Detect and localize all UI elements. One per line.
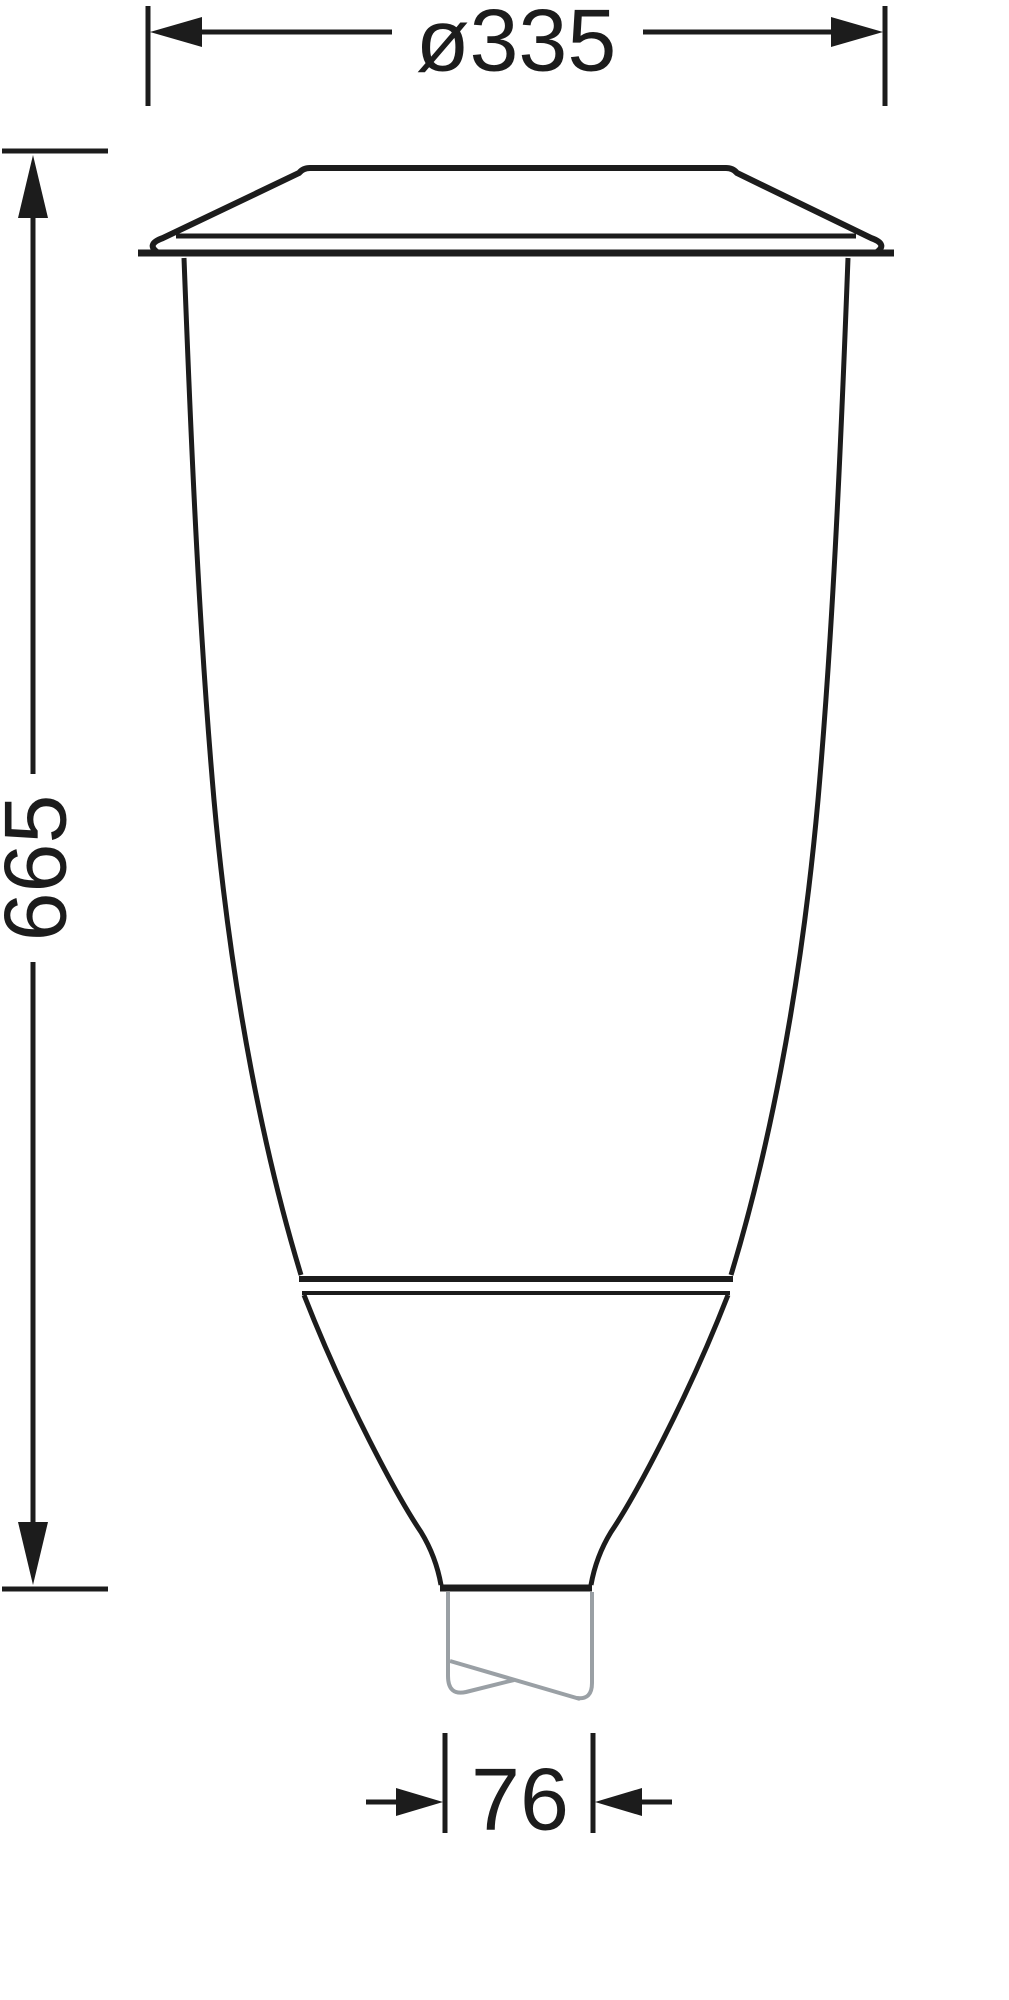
dimension-drawing: ø335 665 76	[0, 0, 1009, 2000]
dim-arrowhead-right	[831, 17, 883, 47]
luminaire-outline	[138, 168, 894, 1588]
ink-layer: ø335 665 76	[0, 0, 894, 1849]
funnel-side-left	[304, 1295, 441, 1585]
cap-hood-outline	[153, 168, 882, 252]
pole	[448, 1592, 592, 1699]
luminaire-dimension-svg: ø335 665 76	[0, 0, 1009, 2000]
spigot-width-label: 76	[471, 1750, 569, 1849]
dim-arrowhead-left	[150, 17, 202, 47]
top-diameter-label: ø335	[416, 0, 617, 90]
pole-break-diagonal	[450, 1661, 580, 1699]
height-arrowhead-bottom	[18, 1522, 48, 1585]
top-diameter-dimension: ø335	[148, 0, 885, 106]
height-arrowhead-top	[18, 155, 48, 218]
spigot-arrowhead-left	[396, 1788, 443, 1816]
body-side-left	[184, 258, 301, 1275]
funnel-side-right	[591, 1295, 728, 1585]
pole-side-right	[577, 1592, 592, 1698]
height-dimension: 665	[0, 151, 108, 1589]
overall-height-label: 665	[0, 795, 85, 942]
spigot-arrowhead-right	[595, 1788, 642, 1816]
spigot-dimension: 76	[366, 1733, 672, 1849]
body-side-right	[731, 258, 848, 1275]
